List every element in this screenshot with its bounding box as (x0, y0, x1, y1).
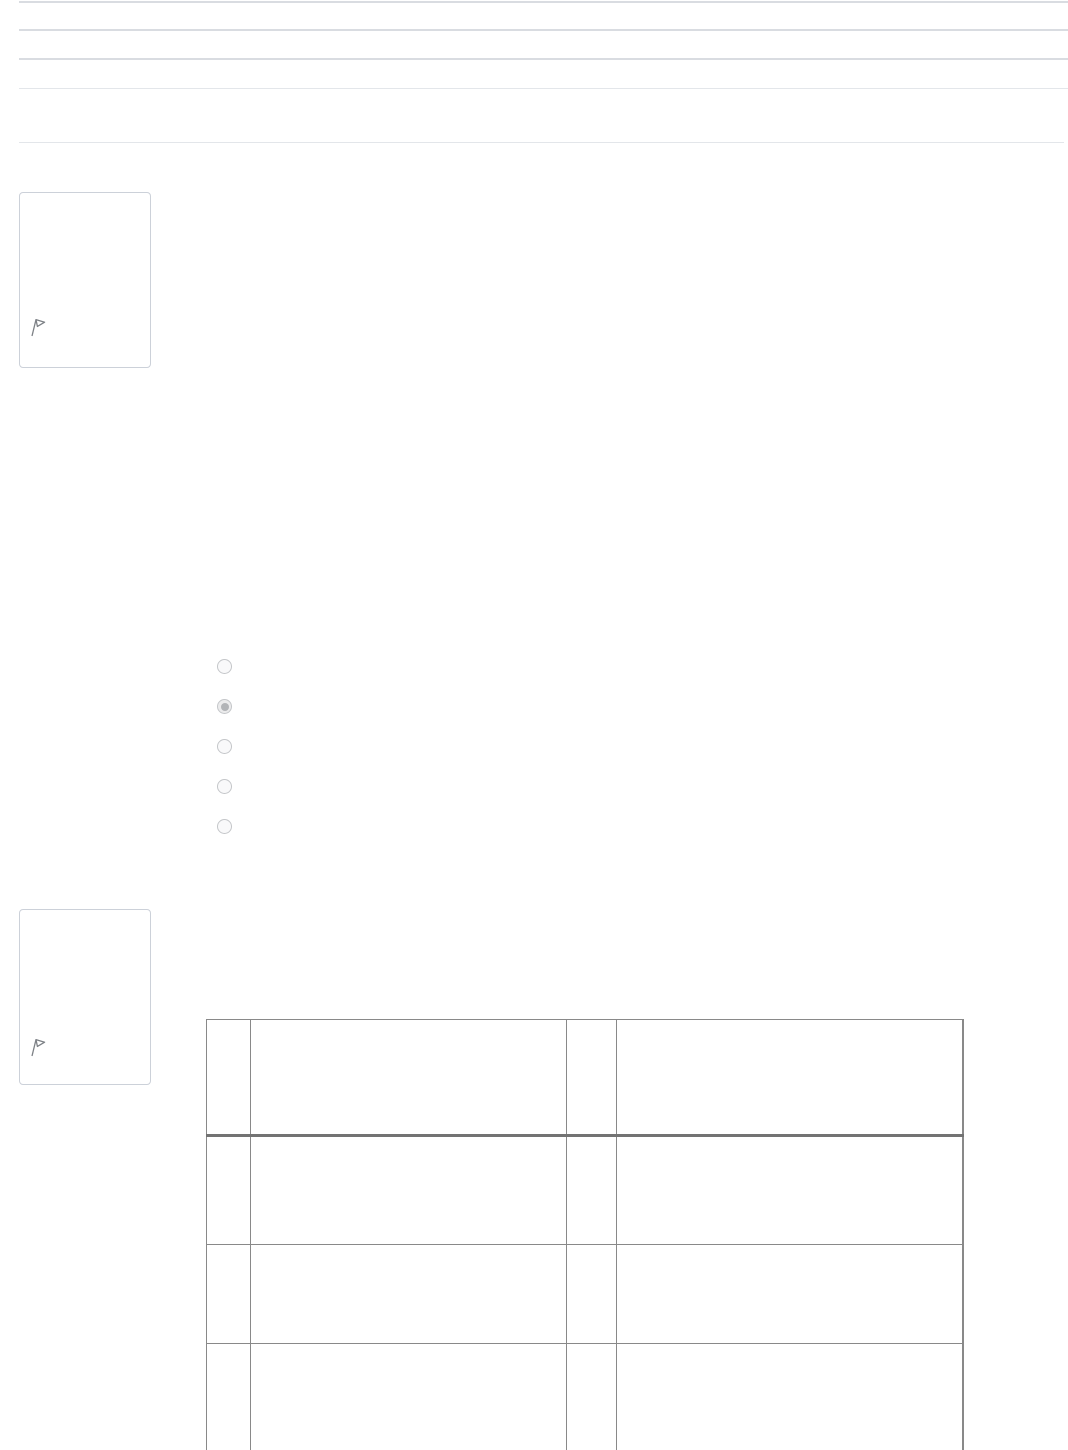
answer-option-1[interactable] (217, 659, 232, 674)
table-cell (251, 1136, 567, 1245)
answer-table (206, 1019, 964, 1450)
table-cell (617, 1136, 963, 1245)
radio-button[interactable] (217, 739, 232, 754)
answer-table-container (206, 1019, 966, 1450)
table-cell (207, 1344, 251, 1450)
table-cell (207, 1136, 251, 1245)
radio-button[interactable] (217, 779, 232, 794)
quiz-page (0, 0, 1068, 1450)
divider-line (19, 88, 1068, 89)
table-cell (567, 1136, 617, 1245)
answer-option-4[interactable] (217, 779, 232, 794)
divider-line (19, 58, 1068, 60)
divider-line (19, 1, 1068, 3)
flag-icon[interactable] (28, 1037, 48, 1059)
table-cell (207, 1020, 251, 1136)
radio-button[interactable] (217, 699, 232, 714)
flag-icon[interactable] (28, 317, 48, 339)
question-2-flag-box (19, 909, 151, 1085)
table-row (207, 1344, 963, 1450)
table-cell (207, 1245, 251, 1344)
table-cell (251, 1344, 567, 1450)
table-cell (567, 1344, 617, 1450)
radio-button[interactable] (217, 659, 232, 674)
table-cell (567, 1245, 617, 1344)
answer-option-2[interactable] (217, 699, 232, 714)
table-cell (617, 1020, 963, 1136)
table-row (207, 1136, 963, 1245)
table-cell (251, 1020, 567, 1136)
divider-line (19, 29, 1068, 31)
question-1-flag-box (19, 192, 151, 368)
table-cell (567, 1020, 617, 1136)
answer-options-group (217, 659, 232, 859)
answer-option-3[interactable] (217, 739, 232, 754)
table-header-row (207, 1020, 963, 1136)
table-cell (251, 1245, 567, 1344)
radio-button[interactable] (217, 819, 232, 834)
divider-line (19, 142, 1064, 143)
table-row (207, 1245, 963, 1344)
answer-option-5[interactable] (217, 819, 232, 834)
table-cell (617, 1245, 963, 1344)
table-cell (617, 1344, 963, 1450)
